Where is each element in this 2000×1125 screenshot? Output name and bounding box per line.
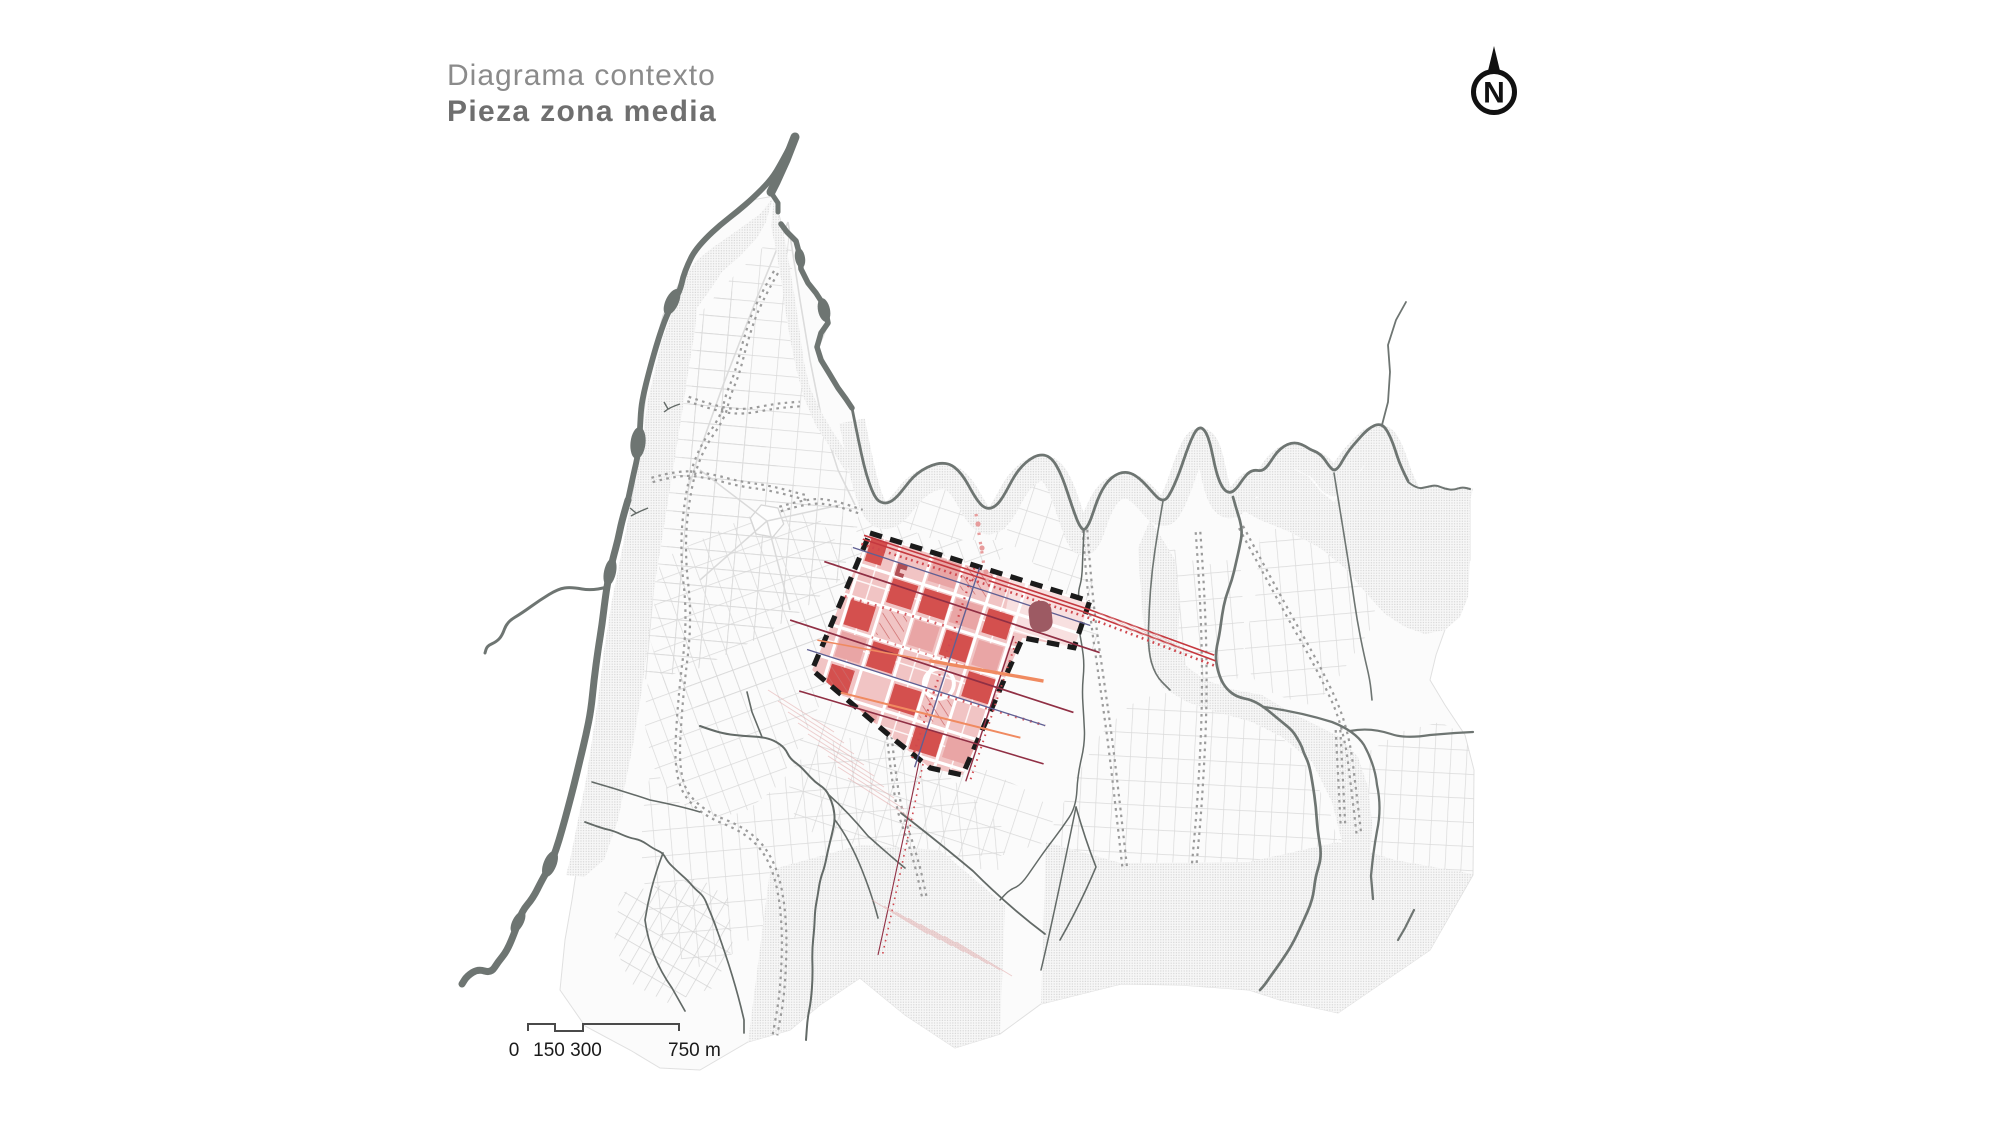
svg-text:750 m: 750 m [668, 1040, 721, 1061]
svg-text:N: N [1483, 77, 1505, 110]
svg-text:300: 300 [570, 1040, 602, 1061]
svg-text:150: 150 [533, 1040, 565, 1061]
svg-text:0: 0 [509, 1040, 520, 1061]
